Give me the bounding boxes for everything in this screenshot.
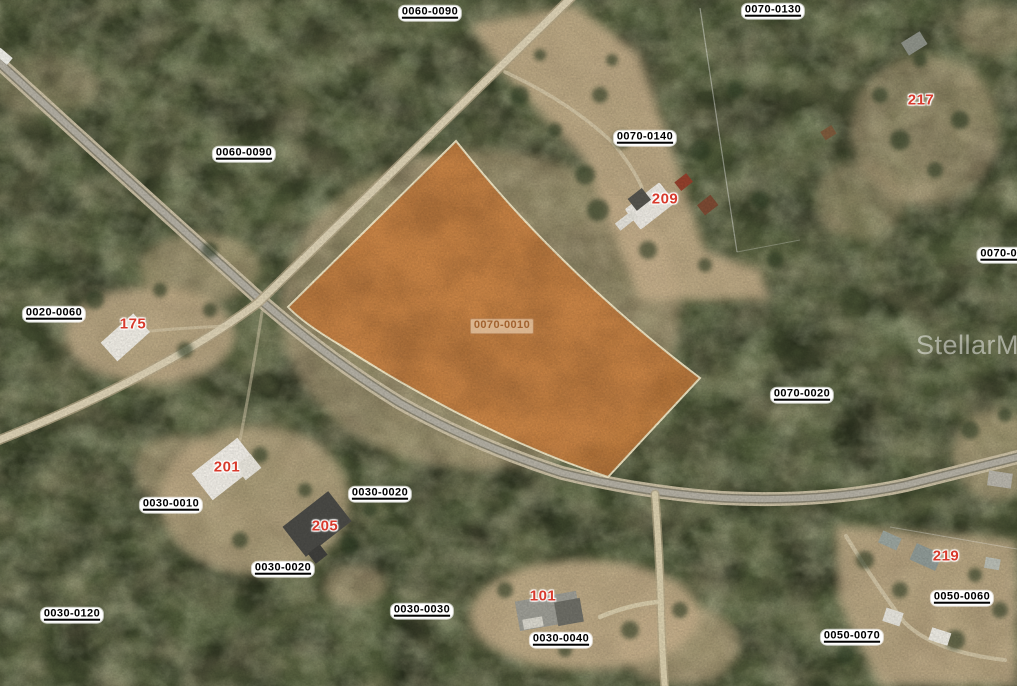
parcel-label: 0030-0120 bbox=[41, 608, 103, 623]
parcel-label: 0030-0040 bbox=[530, 633, 592, 648]
parcel-label: 0070-00 bbox=[977, 248, 1017, 263]
parcel-label: 0030-0030 bbox=[391, 604, 453, 619]
highlighted-parcel-label: 0070-0010 bbox=[470, 318, 534, 334]
parcel-label: 0070-0020 bbox=[771, 388, 833, 403]
address-label: 175 bbox=[120, 316, 147, 333]
address-label: 219 bbox=[933, 548, 960, 565]
aerial-parcel-map: 0060-0090 0070-0130 0070-0140 0060-0090 … bbox=[0, 0, 1017, 686]
label-layer: 0060-0090 0070-0130 0070-0140 0060-0090 … bbox=[0, 0, 1017, 686]
parcel-label: 0030-0020 bbox=[252, 562, 314, 577]
parcel-label: 0050-0070 bbox=[821, 630, 883, 645]
parcel-label: 0070-0130 bbox=[742, 4, 804, 19]
address-label: 201 bbox=[214, 459, 241, 476]
parcel-label: 0050-0060 bbox=[931, 591, 993, 606]
mls-watermark: StellarMLS bbox=[916, 330, 1017, 361]
address-label: 205 bbox=[312, 518, 339, 535]
address-label: 209 bbox=[652, 191, 679, 208]
parcel-label: 0020-0060 bbox=[23, 307, 85, 322]
address-label: 217 bbox=[908, 92, 935, 109]
parcel-label: 0030-0020 bbox=[349, 487, 411, 502]
parcel-label: 0070-0140 bbox=[614, 131, 676, 146]
parcel-label: 0030-0010 bbox=[140, 498, 202, 513]
address-label: 101 bbox=[530, 588, 557, 605]
parcel-label: 0060-0090 bbox=[213, 147, 275, 162]
parcel-label: 0060-0090 bbox=[399, 6, 461, 21]
